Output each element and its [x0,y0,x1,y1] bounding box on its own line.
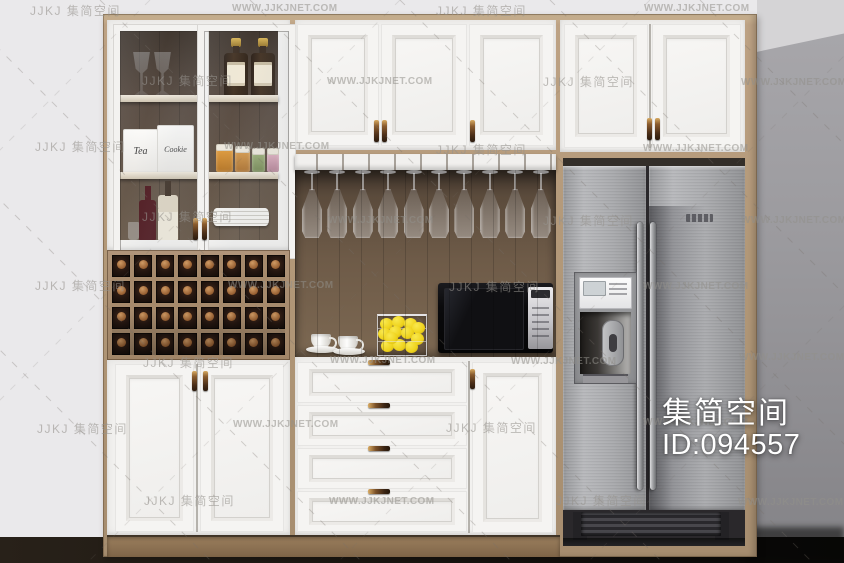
watermark-text: JJKJ 集简空间 [556,492,647,509]
watermark-layer: JJKJ 集简空间WWW.JJKJNET.COMJJKJ 集简空间WWW.JJK… [0,0,844,563]
watermark-text: WWW.JJKJNET.COM [738,497,843,508]
watermark-text: JJKJ 集简空间 [144,492,235,509]
watermark-text: WWW.JJKJNET.COM [327,76,432,87]
watermark-text: JJKJ 集简空间 [37,420,128,437]
scene: Tea Cookie [0,0,844,563]
watermark-text: WWW.JJKJNET.COM [643,281,748,292]
watermark-text: JJKJ 集简空间 [142,208,233,225]
watermark-text: WWW.JJKJNET.COM [741,77,844,88]
watermark-text: WWW.JJKJNET.COM [741,215,844,226]
watermark-text: JJKJ 集简空间 [436,141,527,158]
watermark-text: WWW.JJKJNET.COM [644,3,749,14]
watermark-text: JJKJ 集简空间 [35,138,126,155]
watermark-text: JJKJ 集简空间 [543,73,634,90]
watermark-text: JJKJ 集简空间 [143,354,234,371]
watermark-text: WWW.JJKJNET.COM [328,215,433,226]
watermark-text: JJKJ 集简空间 [543,212,634,229]
watermark-text: WWW.JJKJNET.COM [233,419,338,430]
watermark-text: JJKJ 集简空间 [35,277,126,294]
watermark-text: WWW.JJKJNET.COM [224,141,329,152]
id-badge-brand: 集简空间 [662,398,800,430]
watermark-text: JJKJ 集简空间 [30,2,121,19]
id-badge: 集简空间 ID:094557 [662,398,800,460]
watermark-text: WWW.JJKJNET.COM [511,356,616,367]
id-badge-number: ID:094557 [662,430,800,460]
watermark-text: JJKJ 集简空间 [446,419,537,436]
watermark-text: JJKJ 集简空间 [142,72,233,89]
watermark-text: JJKJ 集简空间 [436,2,527,19]
watermark-text: WWW.JJKJNET.COM [643,143,748,154]
watermark-text: WWW.JJKJNET.COM [228,280,333,291]
watermark-text: WWW.JJKJNET.COM [232,3,337,14]
watermark-text: WWW.JJKJNET.COM [739,352,844,363]
watermark-text: WWW.JJKJNET.COM [330,355,435,366]
watermark-text: JJKJ 集简空间 [449,278,540,295]
watermark-text: WWW.JJKJNET.COM [329,496,434,507]
